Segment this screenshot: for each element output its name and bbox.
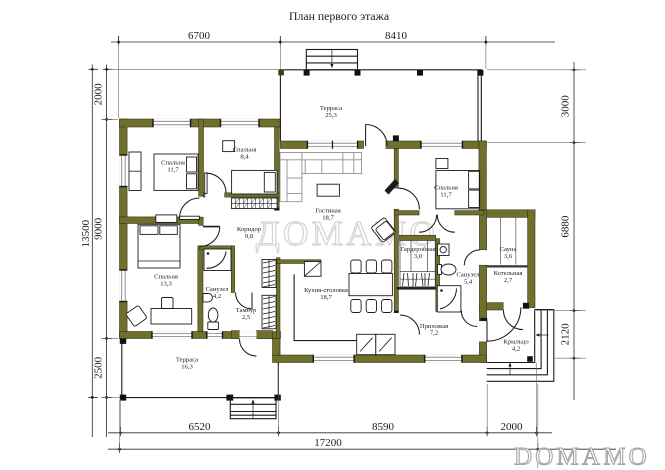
svg-text:2120: 2120 <box>559 323 571 346</box>
svg-text:2500: 2500 <box>92 356 104 379</box>
svg-text:6520: 6520 <box>189 421 212 433</box>
svg-text:2000: 2000 <box>501 421 524 433</box>
svg-text:13500: 13500 <box>80 219 92 247</box>
svg-text:17200: 17200 <box>314 437 342 449</box>
svg-text:DOMAMO: DOMAMO <box>514 444 650 470</box>
svg-text:8590: 8590 <box>372 421 395 433</box>
svg-text:6880: 6880 <box>559 215 571 238</box>
svg-text:9000: 9000 <box>92 217 104 240</box>
svg-text:2000: 2000 <box>92 83 104 106</box>
svg-text:3000: 3000 <box>559 95 571 118</box>
svg-text:План первого этажа: План первого этажа <box>289 9 390 23</box>
svg-text:6700: 6700 <box>188 30 211 42</box>
svg-text:8410: 8410 <box>385 30 408 42</box>
